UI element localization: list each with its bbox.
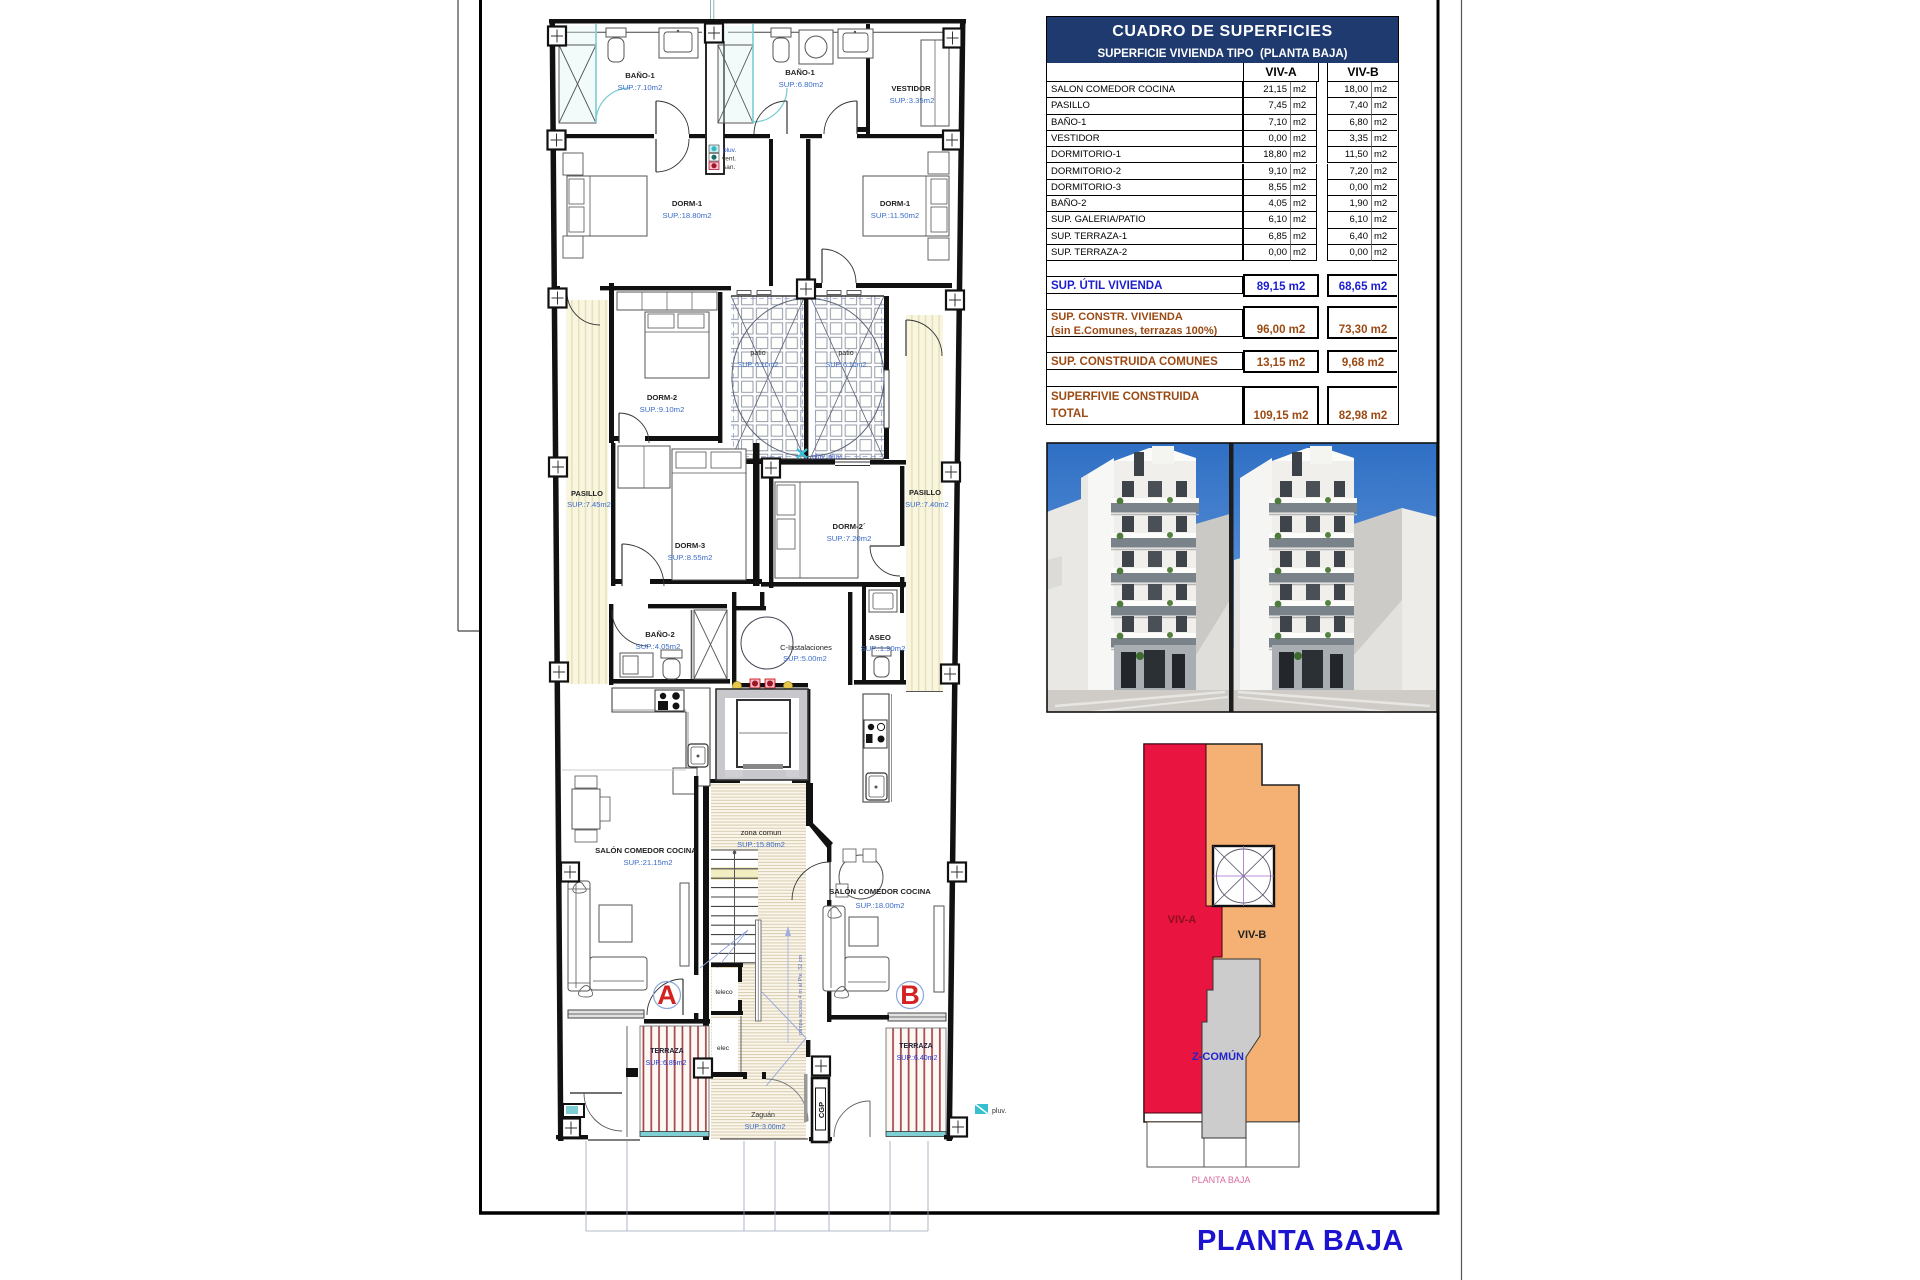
svg-text:SUP.:7.10m2: SUP.:7.10m2	[618, 83, 663, 92]
svg-text:TERRAZA: TERRAZA	[899, 1043, 932, 1050]
svg-text:ASEO: ASEO	[869, 633, 891, 642]
svg-text:SUP.:4.05m2: SUP.:4.05m2	[636, 642, 681, 651]
svg-text:SUP.:7.45m2: SUP.:7.45m2	[567, 500, 611, 509]
svg-text:SUP.:7.40m2: SUP.:7.40m2	[905, 500, 949, 509]
svg-text:C-Instalaciones: C-Instalaciones	[780, 643, 832, 652]
svg-text:VESTIDOR: VESTIDOR	[891, 84, 931, 93]
svg-text:rampa acceso 4 m al Pte. 32 cm: rampa acceso 4 m al Pte. 32 cm	[798, 954, 804, 1035]
svg-text:BAÑO-2: BAÑO-2	[645, 630, 674, 639]
svg-text:SUP.:6.10m2: SUP.:6.10m2	[826, 362, 867, 369]
svg-text:SUP.:6.40m2: SUP.:6.40m2	[897, 1055, 938, 1062]
svg-text:PASILLO: PASILLO	[571, 489, 603, 498]
svg-text:SUP.:1.90m2: SUP.:1.90m2	[861, 644, 906, 653]
svg-text:DORM-1: DORM-1	[880, 199, 911, 208]
svg-text:pluv.: pluv.	[723, 147, 736, 154]
svg-text:DORM-1: DORM-1	[672, 199, 703, 208]
svg-text:B: B	[900, 980, 920, 1010]
svg-text:SUP.:11.50m2: SUP.:11.50m2	[871, 211, 919, 220]
svg-text:teleco: teleco	[715, 989, 733, 996]
svg-text:SUP.:15.80m2: SUP.:15.80m2	[737, 840, 785, 849]
svg-text:SUP.:3.35m2: SUP.:3.35m2	[890, 96, 935, 105]
svg-text:patio: patio	[838, 350, 853, 357]
svg-text:Zaguán: Zaguán	[751, 1112, 775, 1119]
svg-text:pluv. pluv.: pluv. pluv.	[812, 454, 843, 461]
svg-text:vent.: vent.	[722, 156, 736, 163]
svg-text:san.: san.	[723, 164, 735, 171]
svg-text:zona comun: zona comun	[741, 828, 782, 837]
svg-text:BAÑO-1: BAÑO-1	[625, 71, 655, 80]
svg-text:SUP.:21.15m2: SUP.:21.15m2	[623, 858, 672, 867]
svg-text:VIV-B: VIV-B	[1238, 929, 1267, 941]
svg-text:elec: elec	[717, 1045, 730, 1052]
svg-text:A: A	[657, 980, 677, 1010]
svg-text:CGP: CGP	[817, 1102, 826, 1118]
svg-text:SUP.:8.55m2: SUP.:8.55m2	[668, 553, 713, 562]
svg-text:SUP.:5.00m2: SUP.:5.00m2	[783, 654, 827, 663]
svg-text:SUP.:18.00m2: SUP.:18.00m2	[855, 901, 904, 910]
svg-text:PASILLO: PASILLO	[909, 488, 941, 497]
svg-text:VIV-A: VIV-A	[1168, 914, 1197, 926]
svg-text:SALÓN COMEDOR COCINA: SALÓN COMEDOR COCINA	[829, 887, 931, 896]
svg-text:DORM-2´: DORM-2´	[833, 522, 866, 531]
svg-text:pluv.: pluv.	[992, 1108, 1006, 1115]
svg-text:SUP.:7.20m2: SUP.:7.20m2	[827, 534, 872, 543]
svg-text:Z-COMÚN: Z-COMÚN	[1192, 1050, 1244, 1063]
svg-text:SUP.:6.80m2: SUP.:6.80m2	[779, 80, 824, 89]
svg-text:SUP.:3.00m2: SUP.:3.00m2	[745, 1124, 786, 1131]
svg-text:BAÑO-1: BAÑO-1	[785, 68, 815, 77]
svg-text:PLANTA BAJA: PLANTA BAJA	[1192, 1175, 1251, 1185]
svg-text:SUP.:9.10m2: SUP.:9.10m2	[640, 405, 685, 414]
svg-text:SUP.:6.10m2: SUP.:6.10m2	[738, 362, 779, 369]
svg-text:SUP.:18.80m2: SUP.:18.80m2	[662, 211, 711, 220]
svg-text:DORM-3: DORM-3	[675, 541, 705, 550]
svg-text:DORM-2: DORM-2	[647, 393, 677, 402]
svg-text:SALÓN COMEDOR COCINA: SALÓN COMEDOR COCINA	[595, 846, 697, 855]
svg-text:TERRAZA: TERRAZA	[650, 1048, 683, 1055]
svg-text:patio: patio	[750, 350, 765, 357]
svg-text:SUP.:6.85m2: SUP.:6.85m2	[646, 1060, 687, 1067]
